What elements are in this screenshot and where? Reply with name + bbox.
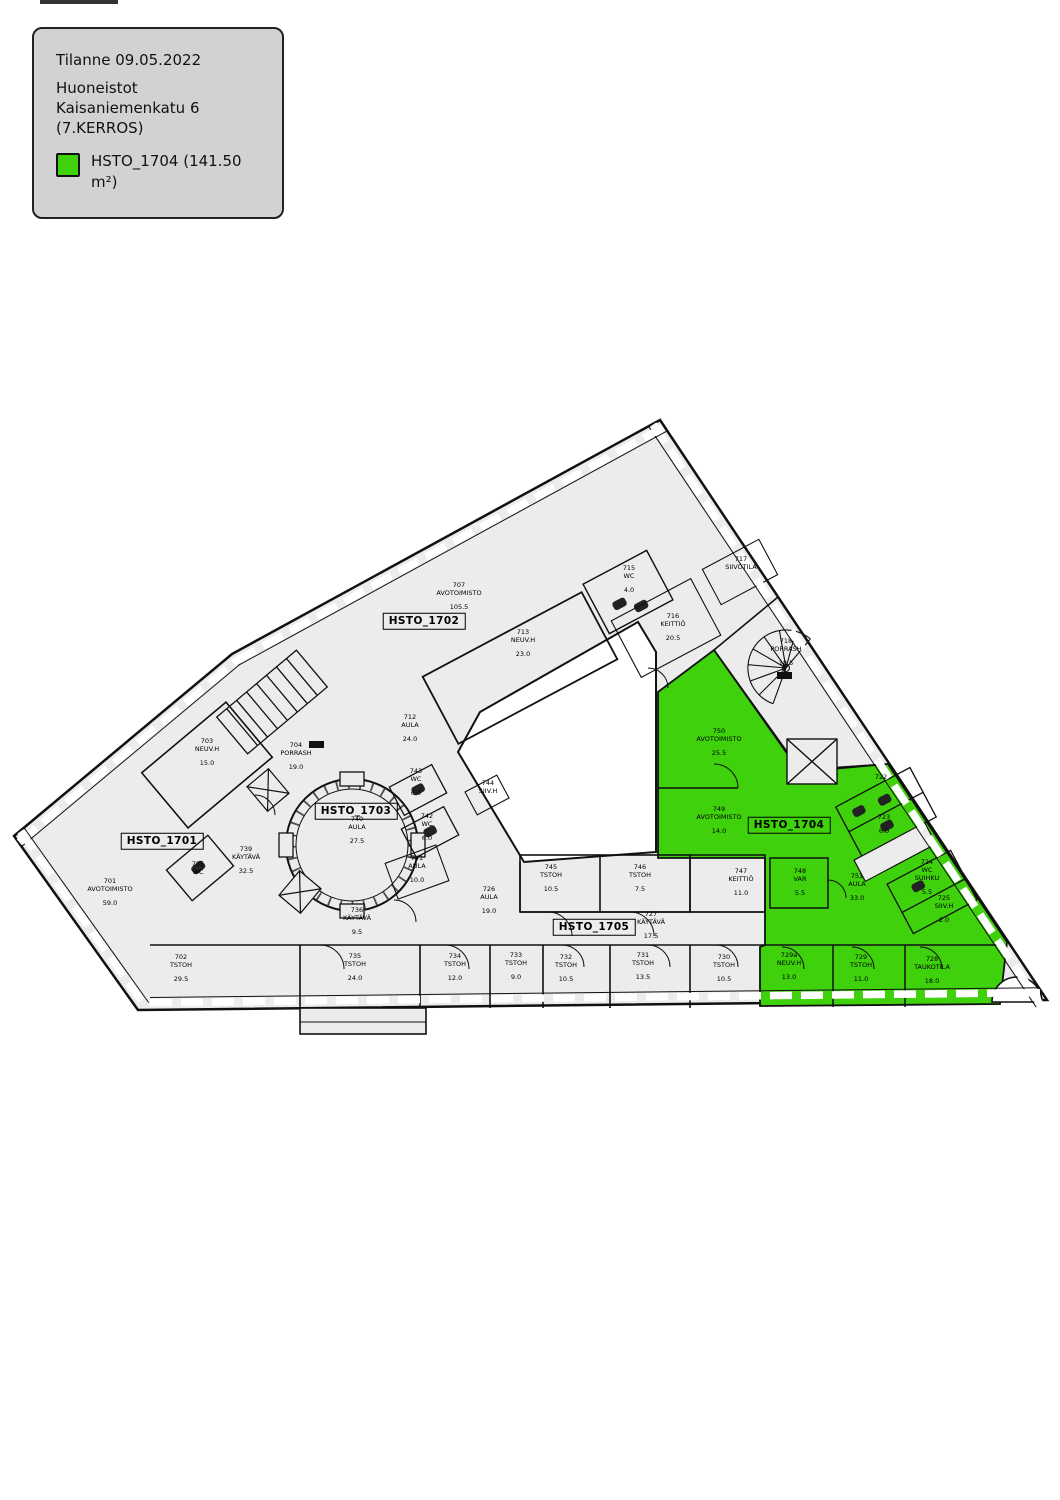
- legend-building-line-1: Huoneistot: [56, 79, 262, 99]
- reference-badge-east: [777, 672, 792, 679]
- legend-building-line-2: Kaisaniemenkatu 6: [56, 99, 262, 119]
- legend-title: Tilanne 09.05.2022: [56, 51, 262, 69]
- entrance-bay: [300, 1008, 426, 1034]
- floor-plan-container: 701 AVOTOIMISTO59.0702 TSTOH29.5703 NEUV…: [0, 0, 1060, 1500]
- floor-plan-svg: [0, 0, 1060, 1500]
- reference-badge-west: [309, 741, 324, 748]
- legend-item-label: HSTO_1704 (141.50 m²): [91, 151, 261, 193]
- legend-building-line-3: (7.KERROS): [56, 119, 262, 139]
- legend-item: HSTO_1704 (141.50 m²): [56, 151, 262, 193]
- elevator-shaft-main: [787, 739, 837, 784]
- legend-box: Tilanne 09.05.2022 Huoneistot Kaisanieme…: [32, 27, 284, 219]
- legend-highlight-swatch: [56, 153, 80, 177]
